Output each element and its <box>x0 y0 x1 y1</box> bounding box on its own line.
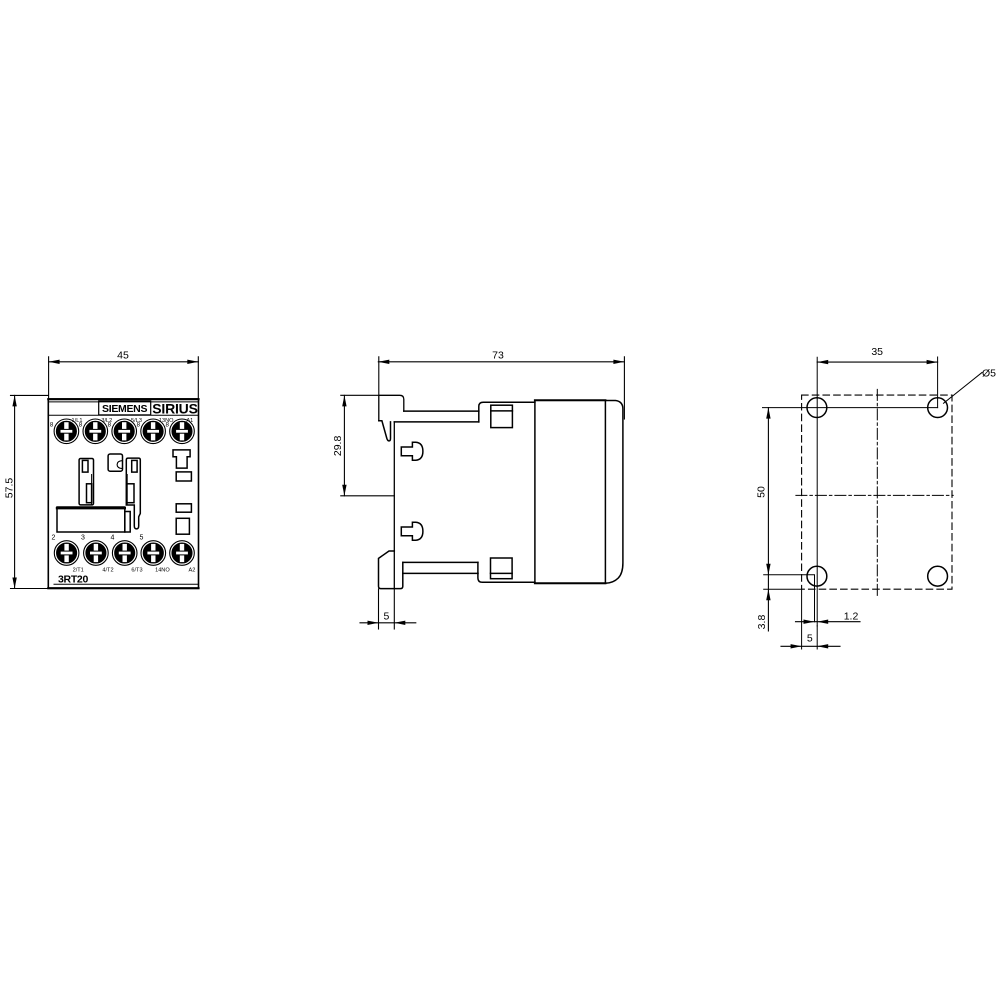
svg-text:5: 5 <box>140 535 144 542</box>
svg-text:SIRIUS: SIRIUS <box>152 401 197 417</box>
svg-text:29.8: 29.8 <box>332 436 344 457</box>
svg-text:5: 5 <box>383 611 389 623</box>
svg-text:50: 50 <box>756 486 768 498</box>
svg-text:1.2: 1.2 <box>844 611 859 623</box>
svg-text:57.5: 57.5 <box>4 478 16 499</box>
svg-text:8: 8 <box>50 422 54 429</box>
svg-text:SIEMENS: SIEMENS <box>102 403 147 415</box>
svg-text:3.8: 3.8 <box>756 615 768 630</box>
svg-text:Ø5: Ø5 <box>982 367 996 379</box>
svg-text:2: 2 <box>52 535 56 542</box>
svg-text:8: 8 <box>79 422 83 429</box>
svg-text:14NO: 14NO <box>155 567 170 573</box>
svg-text:45: 45 <box>117 350 129 362</box>
svg-text:5: 5 <box>807 633 813 645</box>
svg-text:3RT20: 3RT20 <box>58 574 88 586</box>
svg-text:6/T3: 6/T3 <box>131 567 142 573</box>
svg-text:A1: A1 <box>186 418 193 424</box>
svg-text:35: 35 <box>871 346 883 358</box>
svg-text:8: 8 <box>165 422 169 429</box>
svg-text:3: 3 <box>81 535 85 542</box>
svg-text:8: 8 <box>108 422 112 429</box>
svg-text:A2: A2 <box>188 567 195 573</box>
svg-text:2/T1: 2/T1 <box>73 567 84 573</box>
svg-text:4/T2: 4/T2 <box>102 567 113 573</box>
svg-text:4: 4 <box>110 535 114 542</box>
svg-text:8: 8 <box>137 422 141 429</box>
svg-text:73: 73 <box>492 350 504 362</box>
